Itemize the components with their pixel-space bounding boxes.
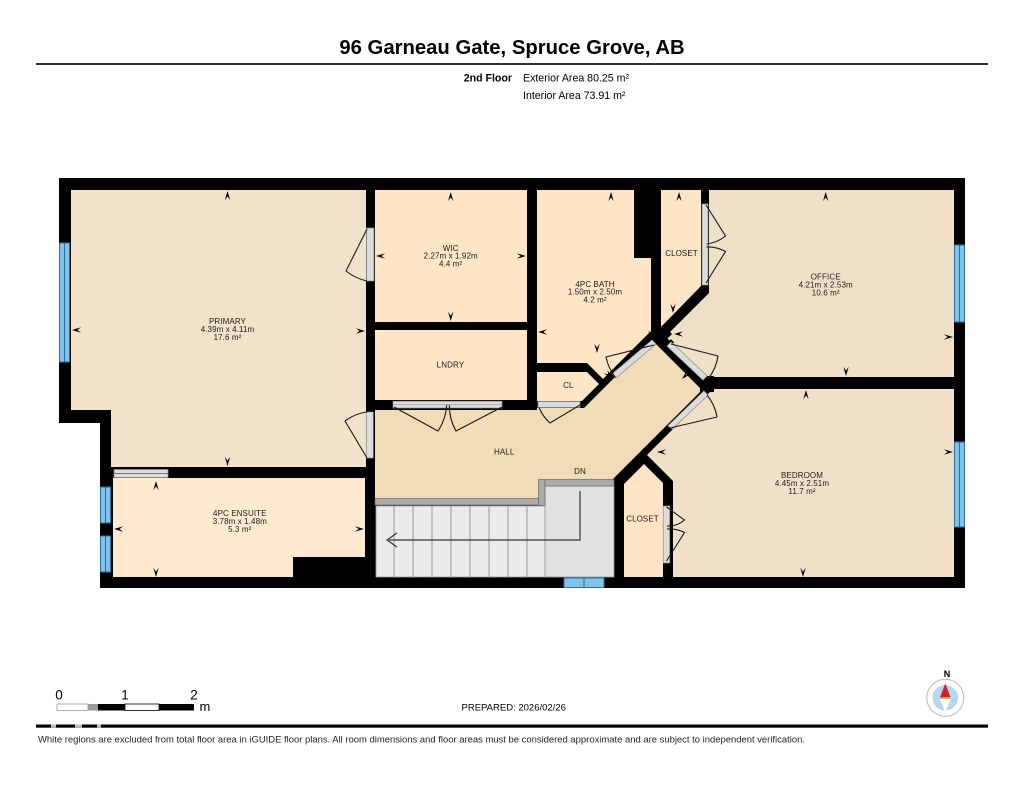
svg-text:CLOSET: CLOSET: [665, 249, 698, 258]
svg-text:White regions are excluded fro: White regions are excluded from total fl…: [38, 735, 805, 746]
svg-text:1: 1: [121, 688, 129, 703]
svg-text:N: N: [944, 669, 951, 679]
svg-text:Exterior Area 80.25 m²: Exterior Area 80.25 m²: [523, 73, 629, 85]
svg-text:4.2 m²: 4.2 m²: [583, 296, 607, 305]
svg-text:0: 0: [55, 688, 63, 703]
svg-text:CL: CL: [563, 381, 574, 390]
svg-text:2: 2: [190, 688, 198, 703]
svg-text:Interior Area 73.91 m²: Interior Area 73.91 m²: [523, 90, 626, 102]
svg-text:17.6 m²: 17.6 m²: [214, 333, 242, 342]
svg-text:m: m: [200, 699, 211, 714]
svg-text:PREPARED: 2026/02/26: PREPARED: 2026/02/26: [462, 703, 566, 714]
svg-text:96 Garneau Gate, Spruce Grove,: 96 Garneau Gate, Spruce Grove, AB: [339, 37, 684, 59]
svg-text:11.7 m²: 11.7 m²: [788, 487, 815, 496]
svg-text:2nd Floor: 2nd Floor: [464, 73, 512, 85]
svg-text:DN: DN: [574, 467, 586, 476]
svg-text:HALL: HALL: [494, 448, 515, 457]
svg-text:CLOSET: CLOSET: [626, 515, 659, 524]
svg-text:LNDRY: LNDRY: [437, 360, 465, 369]
svg-text:4.4 m²: 4.4 m²: [439, 260, 463, 269]
svg-text:5.3 m²: 5.3 m²: [228, 525, 252, 534]
svg-text:10.6 m²: 10.6 m²: [812, 289, 840, 298]
